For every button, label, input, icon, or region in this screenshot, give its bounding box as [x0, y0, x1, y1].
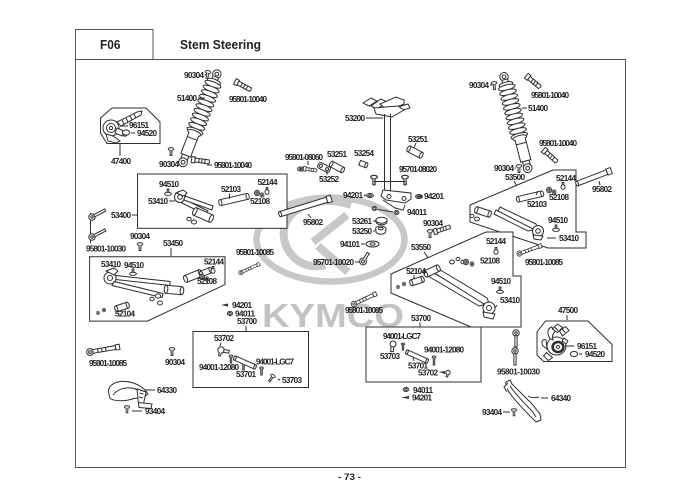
svg-text:51400: 51400: [177, 94, 197, 103]
svg-text:52108: 52108: [480, 257, 500, 266]
svg-text:53703: 53703: [380, 352, 400, 361]
svg-text:52103: 52103: [221, 185, 241, 194]
svg-text:52108: 52108: [250, 197, 270, 206]
svg-text:52144: 52144: [258, 178, 278, 187]
svg-text:95801-10040: 95801-10040: [531, 91, 569, 100]
svg-text:53410: 53410: [148, 197, 168, 206]
svg-text:93404: 93404: [145, 407, 165, 416]
svg-text:94001-12080: 94001-12080: [199, 363, 239, 372]
svg-text:95801-08060: 95801-08060: [285, 153, 323, 162]
svg-text:53410: 53410: [559, 234, 579, 243]
svg-text:95801-10085: 95801-10085: [525, 258, 563, 267]
svg-text:94201: 94201: [412, 394, 432, 403]
svg-text:53702: 53702: [418, 369, 438, 378]
svg-text:52108: 52108: [549, 193, 569, 202]
svg-text:52144: 52144: [556, 174, 576, 183]
svg-text:53550: 53550: [411, 243, 431, 252]
svg-text:53410: 53410: [500, 296, 520, 305]
svg-text:53250: 53250: [352, 227, 372, 236]
svg-text:53254: 53254: [354, 149, 374, 158]
svg-text:94001-LGC7: 94001-LGC7: [383, 332, 421, 341]
svg-text:53700: 53700: [411, 314, 431, 323]
svg-text:Stem Steering: Stem Steering: [180, 38, 261, 52]
svg-text:95801-10085: 95801-10085: [345, 306, 383, 315]
svg-text:90304: 90304: [165, 358, 185, 367]
svg-text:47500: 47500: [558, 306, 578, 315]
svg-text:52103: 52103: [527, 200, 547, 209]
svg-text:95701-10020: 95701-10020: [313, 258, 354, 267]
svg-text:F06: F06: [100, 38, 121, 52]
svg-text:53703: 53703: [282, 376, 302, 385]
svg-text:94520: 94520: [585, 350, 605, 359]
svg-text:95801-10085: 95801-10085: [89, 359, 127, 368]
svg-text:64340: 64340: [551, 394, 571, 403]
svg-text:53702: 53702: [214, 334, 234, 343]
svg-text:95801-10040: 95801-10040: [539, 139, 577, 148]
svg-text:94011: 94011: [407, 208, 427, 217]
svg-text:90304: 90304: [423, 219, 443, 228]
svg-text:53251: 53251: [327, 150, 347, 159]
svg-text:90304: 90304: [494, 164, 514, 173]
svg-text:90304: 90304: [130, 232, 150, 241]
svg-text:53261: 53261: [352, 217, 372, 226]
svg-text:94201: 94201: [424, 192, 444, 201]
svg-text:94510: 94510: [491, 277, 511, 286]
svg-text:90304: 90304: [184, 71, 204, 80]
svg-text:53701: 53701: [236, 370, 256, 379]
svg-text:94510: 94510: [548, 216, 568, 225]
svg-text:53252: 53252: [319, 175, 339, 184]
svg-text:95802: 95802: [303, 218, 323, 227]
svg-text:94001-12080: 94001-12080: [424, 346, 464, 355]
svg-text:47400: 47400: [111, 157, 131, 166]
svg-text:94520: 94520: [137, 129, 157, 138]
svg-text:94201: 94201: [343, 191, 363, 200]
svg-text:52104: 52104: [406, 267, 426, 276]
svg-text:53200: 53200: [345, 114, 365, 123]
svg-text:95801-10085: 95801-10085: [236, 248, 274, 257]
svg-text:94510: 94510: [159, 180, 179, 189]
svg-text:52144: 52144: [486, 237, 506, 246]
svg-text:95801-10030: 95801-10030: [86, 245, 126, 254]
svg-text:64330: 64330: [157, 386, 177, 395]
svg-text:52104: 52104: [115, 310, 135, 319]
svg-text:95801-10040: 95801-10040: [214, 161, 252, 170]
svg-text:53450: 53450: [163, 239, 183, 248]
svg-text:93404: 93404: [482, 408, 502, 417]
svg-text:94101: 94101: [340, 240, 360, 249]
svg-text:53400: 53400: [111, 211, 131, 220]
svg-text:52108: 52108: [197, 277, 217, 286]
svg-text:51400: 51400: [528, 104, 548, 113]
svg-text:53700: 53700: [237, 317, 257, 326]
svg-text:52144: 52144: [204, 258, 224, 267]
svg-text:95802: 95802: [592, 185, 612, 194]
svg-text:53500: 53500: [505, 173, 525, 182]
svg-text:95801-10030: 95801-10030: [497, 368, 540, 377]
svg-text:95801-10040: 95801-10040: [229, 95, 267, 104]
svg-text:95701-08020: 95701-08020: [399, 165, 437, 174]
svg-text:- 73 -: - 73 -: [338, 472, 361, 483]
svg-text:53410: 53410: [101, 260, 121, 269]
svg-text:90304: 90304: [469, 81, 489, 90]
svg-text:94001-LGC7: 94001-LGC7: [256, 358, 294, 367]
svg-text:90304: 90304: [159, 160, 179, 169]
svg-text:53251: 53251: [408, 135, 428, 144]
